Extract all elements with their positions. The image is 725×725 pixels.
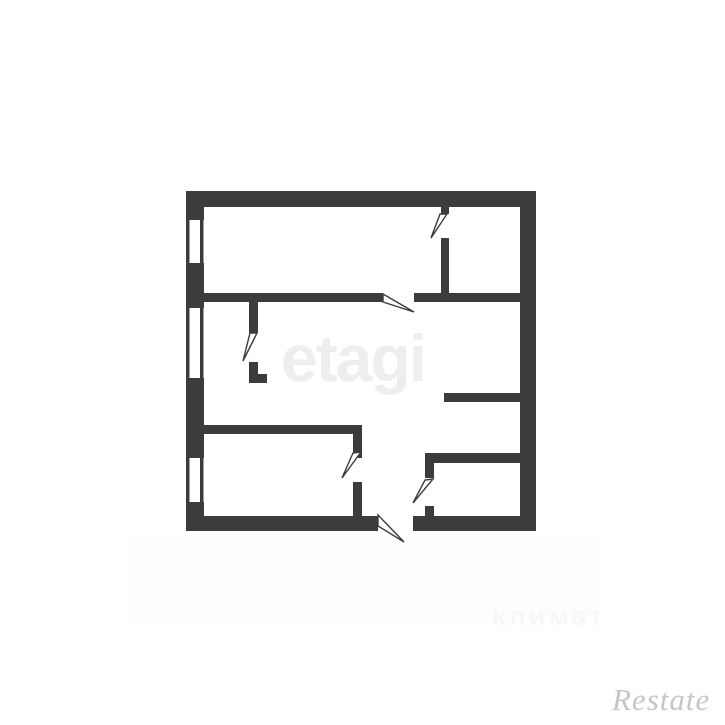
window-2-inner-line: [200, 308, 204, 378]
door-leaf-entrance: [378, 515, 404, 542]
door-leaf-smallroom: [243, 333, 257, 361]
window-1-outer-line: [186, 220, 190, 263]
door-leaf-hall: [383, 294, 414, 312]
faint-agency-watermark: климат: [492, 603, 605, 630]
wall-outer-bottom-right-of-entrance: [413, 516, 536, 531]
etagi-watermark: etagi: [281, 325, 425, 391]
wall-bottomleft-horizontal: [204, 425, 362, 434]
window-1-inner-line: [200, 220, 204, 263]
door-leaf-topright-room: [431, 214, 447, 238]
wall-mid-horizontal-left: [204, 293, 383, 302]
wall-topright-room-stub: [441, 207, 449, 214]
window-2-outer-line: [186, 308, 190, 378]
wall-outer-left-seg3: [186, 378, 204, 458]
wall-outer-left-seg1: [186, 191, 204, 220]
wall-outer-top: [186, 191, 536, 207]
wall-outer-bottom-left-of-entrance: [186, 516, 378, 531]
wall-outer-left-seg4: [186, 502, 204, 531]
wall-outer-left-seg2: [186, 263, 204, 308]
wall-bottomright-horizontal: [425, 453, 520, 463]
wall-smallroom-vertical-upper: [249, 302, 258, 333]
window-3-outer-line: [186, 458, 190, 502]
wall-topright-room-vertical: [441, 238, 449, 302]
window-3-inner-line: [200, 458, 204, 502]
door-leaf-bottomleft-room: [342, 452, 361, 478]
wall-bottomright-vertical-upper: [425, 463, 434, 478]
wall-bottomleft-vertical-lower: [353, 482, 362, 516]
wall-mid-horizontal-right: [414, 293, 520, 302]
restate-logo-watermark: Restate: [612, 684, 710, 715]
wall-outer-right: [520, 191, 536, 531]
wall-bottomright-vertical-lower: [425, 506, 434, 516]
floorplan-image: etagi климат Restate: [0, 0, 725, 725]
door-leaf-bottomright-room: [413, 479, 433, 503]
wall-smallroom-foot: [249, 374, 267, 383]
wall-right-stub: [444, 393, 520, 402]
